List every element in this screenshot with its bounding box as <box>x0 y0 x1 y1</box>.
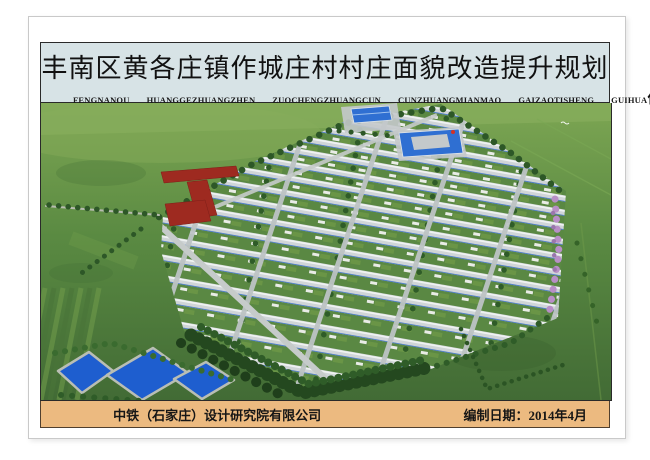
design-company: 中铁（石家庄）设计研究院有限公司 <box>41 405 393 424</box>
pinyin-word: GUIHUA <box>611 95 647 105</box>
poster-sheet: 丰南区黄各庄镇作城庄村村庄面貌改造提升规划 FENGNANQU HUANGGEZ… <box>28 16 626 439</box>
poster-header: 丰南区黄各庄镇作城庄村村庄面貌改造提升规划 FENGNANQU HUANGGEZ… <box>40 42 610 103</box>
aerial-render <box>40 103 612 401</box>
flag-marker <box>451 130 455 134</box>
aerial-render-svg <box>41 103 611 400</box>
poster-footer: 中铁（石家庄）设计研究院有限公司 编制日期：2014年4月 <box>40 401 610 428</box>
poster-title: 丰南区黄各庄镇作城庄村村庄面貌改造提升规划 <box>41 48 609 85</box>
compile-date: 编制日期：2014年4月 <box>463 405 587 424</box>
